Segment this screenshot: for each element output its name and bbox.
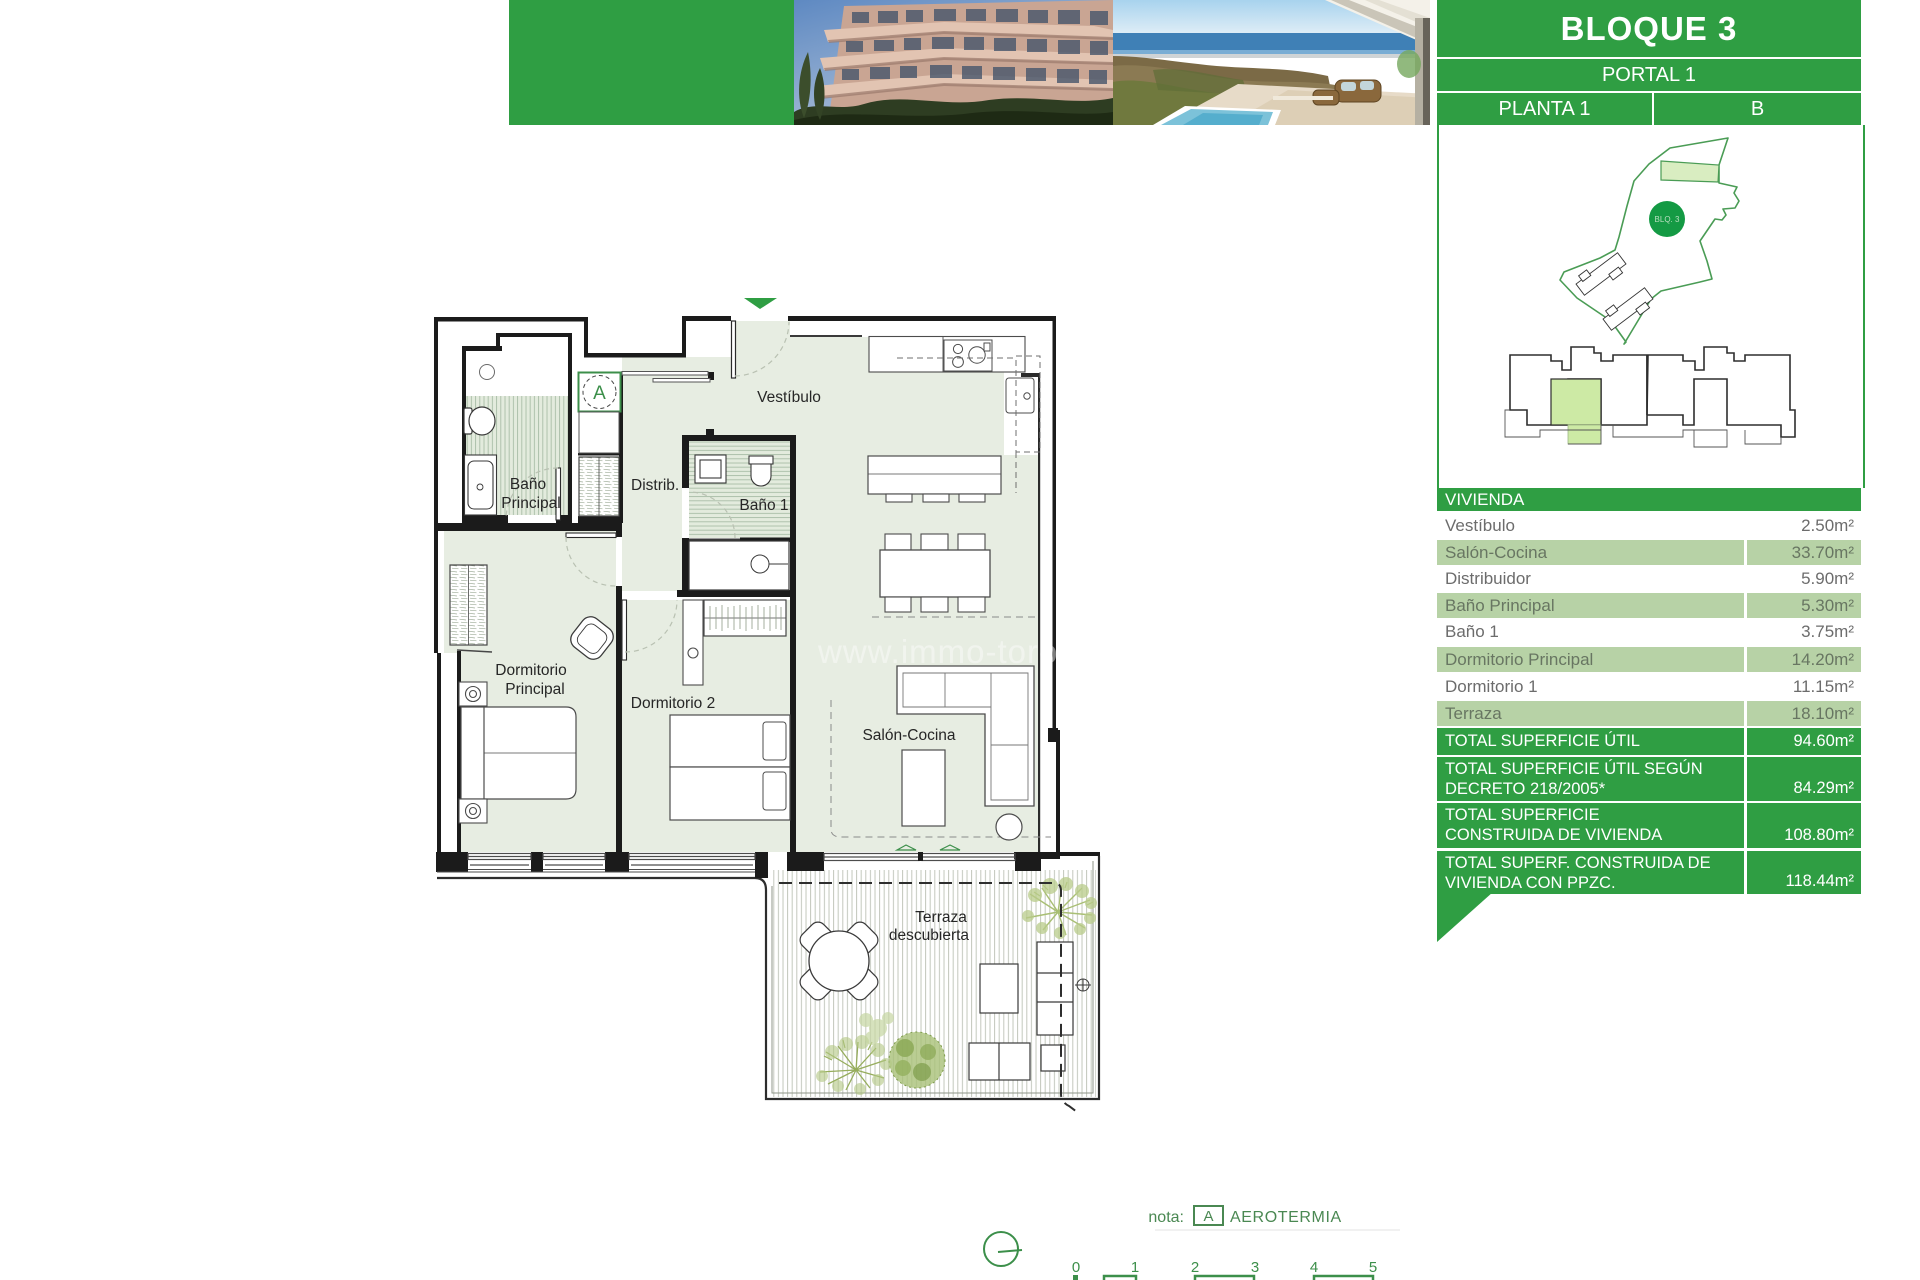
svg-text:nota:: nota: [1148, 1209, 1184, 1226]
svg-text:Vestíbulo: Vestíbulo [757, 389, 821, 406]
svg-text:3: 3 [1251, 1259, 1259, 1276]
svg-text:Dormitorio 2: Dormitorio 2 [631, 695, 715, 712]
svg-text:1: 1 [1131, 1259, 1139, 1276]
svg-text:A: A [1203, 1208, 1213, 1225]
svg-text:5: 5 [1369, 1259, 1377, 1276]
svg-text:2: 2 [1191, 1259, 1199, 1276]
svg-text:0: 0 [1072, 1259, 1080, 1276]
svg-text:Terraza: Terraza [915, 909, 967, 926]
svg-text:Principal: Principal [501, 495, 560, 512]
svg-text:Distrib.: Distrib. [631, 477, 679, 494]
svg-text:Salón-Cocina: Salón-Cocina [862, 727, 955, 744]
svg-text:descubierta: descubierta [889, 927, 970, 944]
svg-text:4: 4 [1310, 1259, 1318, 1276]
svg-text:AEROTERMIA: AEROTERMIA [1230, 1209, 1342, 1226]
svg-text:Dormitorio: Dormitorio [495, 662, 566, 679]
svg-text:A: A [593, 383, 606, 404]
svg-text:Baño: Baño [510, 476, 546, 493]
svg-text:Baño 1: Baño 1 [739, 497, 788, 514]
svg-text:Principal: Principal [505, 681, 564, 698]
svg-text:www.immo-toro.c: www.immo-toro.c [817, 633, 1086, 670]
